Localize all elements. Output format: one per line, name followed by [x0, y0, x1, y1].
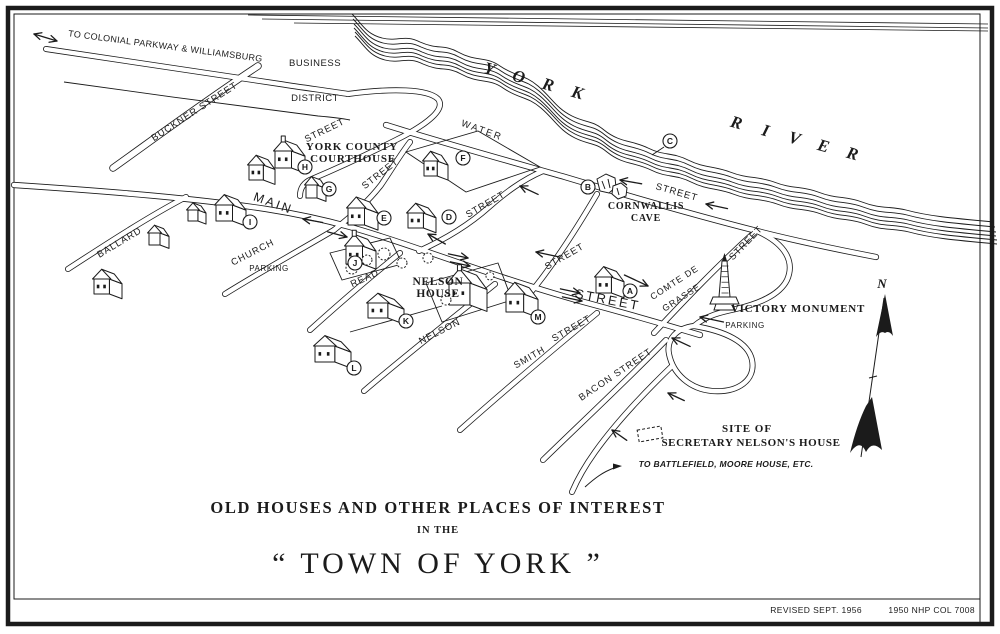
- arrow-head: [460, 258, 468, 260]
- building-window: [358, 214, 361, 218]
- building-window: [372, 309, 375, 313]
- markers-layer: ABCDEFGHIJKLM: [243, 134, 677, 375]
- building-window: [351, 214, 354, 218]
- building-window: [97, 285, 100, 289]
- label-secretary-nelson: SECRETARY NELSON'S HOUSE: [661, 437, 840, 449]
- labels-layer: TO COLONIAL PARKWAY & WILLIAMSBURGBUSINE…: [68, 28, 866, 469]
- poi-marker-j: J: [348, 256, 362, 270]
- label-street-smith: STREET: [550, 313, 593, 344]
- building-window: [509, 301, 512, 305]
- marker-letter-c: C: [667, 136, 673, 146]
- arrow-head: [706, 202, 714, 204]
- arrow-head: [620, 178, 628, 180]
- marker-letter-m: M: [534, 312, 541, 322]
- road-arrow-exit-sw: [612, 430, 627, 440]
- poi-marker-k: K: [399, 314, 413, 328]
- arrow-head: [536, 250, 544, 252]
- building-chimney: [457, 265, 461, 271]
- label-nelson-house-2: HOUSE: [416, 288, 459, 300]
- building-window: [319, 352, 322, 356]
- building-front: [306, 185, 317, 198]
- frame-layer: [8, 8, 992, 624]
- building-window: [599, 283, 602, 287]
- label-cave: CAVE: [631, 213, 661, 224]
- map-title-line2: IN THE: [417, 525, 459, 536]
- label-district: DISTRICT: [291, 93, 339, 104]
- building-window: [327, 352, 330, 356]
- river-label-letter: K: [568, 82, 587, 104]
- building-window: [417, 219, 420, 223]
- tree-scribble: [397, 258, 407, 268]
- title-layer: OLD HOUSES AND OTHER PLACES OF INTERESTI…: [210, 498, 975, 615]
- road-fill-parkway: [46, 49, 348, 94]
- river-label-letter: R: [727, 112, 744, 134]
- river-label-letter: R: [539, 74, 556, 96]
- compass-head: [876, 294, 893, 337]
- poi-marker-g: G: [322, 182, 336, 196]
- credit-catalog-number: 1950 NHP COL 7008: [888, 605, 975, 615]
- marker-letter-h: H: [302, 162, 308, 172]
- label-parking-church: PARKING: [249, 264, 289, 273]
- tree-scribble: [362, 255, 372, 265]
- far-shore-line: [248, 15, 988, 24]
- arrow-head: [34, 33, 42, 34]
- river-label-letter: R: [843, 143, 860, 165]
- map-svg: N TO COLONIAL PARKWAY & WILLIAMSBURGBUSI…: [0, 0, 1000, 634]
- label-nelson-house-1: NELSON: [413, 276, 464, 288]
- road-arrow-parkway-two-way: [34, 33, 57, 43]
- road-arrow-water-east-left: [706, 202, 728, 209]
- building-l-house: [314, 336, 352, 369]
- town-of-york-map-page: N TO COLONIAL PARKWAY & WILLIAMSBURGBUSI…: [0, 0, 1000, 634]
- tree-scribble: [423, 253, 433, 263]
- river-label-letter: V: [786, 128, 804, 150]
- label-nelson-street: NELSON: [417, 317, 462, 347]
- building-f-house: [423, 151, 449, 180]
- road-fill-turn-loop: [669, 326, 753, 391]
- poi-marker-i: I: [243, 215, 257, 229]
- label-courthouse: COURTHOUSE: [310, 153, 396, 165]
- river-label-letter: O: [510, 66, 527, 88]
- label-parking-victory: PARKING: [725, 321, 765, 330]
- poi-marker-b: B: [581, 180, 595, 194]
- building-house-west-1: [93, 269, 123, 299]
- building-house-west-2: [148, 225, 170, 248]
- battlefield-arrow-head: [613, 464, 622, 470]
- label-street-connector: STREET: [464, 189, 507, 220]
- poi-marker-m: M: [531, 310, 545, 324]
- road-arrow-loop-top: [672, 338, 690, 347]
- compass-n-label: N: [876, 276, 887, 291]
- building-i-house: [215, 195, 247, 227]
- building-front: [348, 208, 365, 225]
- map-title-line3: “ TOWN OF YORK ”: [272, 547, 604, 580]
- building-front: [94, 279, 109, 294]
- building-window: [219, 211, 222, 215]
- building-front: [249, 165, 263, 180]
- road-fill-water-street: [386, 125, 876, 257]
- building-window: [380, 309, 383, 313]
- tree-scribble: [486, 272, 494, 280]
- building-e-house: [347, 197, 379, 230]
- marker-letter-g: G: [326, 184, 333, 194]
- tree-scribble: [378, 248, 390, 260]
- building-house-west-3: [187, 203, 207, 224]
- building-window: [258, 171, 261, 175]
- label-water-street: WATER: [460, 118, 504, 143]
- building-front: [149, 233, 160, 245]
- marker-letter-e: E: [381, 213, 387, 223]
- river-label-letter: E: [814, 135, 831, 157]
- label-cornwallis: CORNWALLIS: [608, 201, 684, 212]
- label-buckner-street: BUCKNER STREET: [149, 80, 239, 144]
- building-window: [226, 211, 229, 215]
- marker-letter-a: A: [627, 286, 633, 296]
- secretary-nelson-site-outline: [637, 426, 663, 442]
- arrow-head: [339, 237, 347, 239]
- label-ballard-street: BALLARD: [95, 225, 144, 260]
- poi-marker-l: L: [347, 361, 361, 375]
- poi-marker-c: C: [663, 134, 677, 148]
- building-k-house: [367, 293, 405, 324]
- building-window: [103, 285, 106, 289]
- building-courthouse-wing: [248, 155, 276, 184]
- building-front: [315, 346, 335, 362]
- label-site-of: SITE OF: [722, 423, 772, 435]
- building-window: [605, 283, 608, 287]
- marker-letter-b: B: [585, 182, 591, 192]
- building-window: [252, 171, 255, 175]
- label-business: BUSINESS: [289, 58, 341, 69]
- poi-marker-d: D: [442, 210, 456, 224]
- building-front: [408, 213, 423, 228]
- road-arrow-loop-bottom: [668, 393, 684, 401]
- outer-border: [8, 8, 992, 624]
- compass-fletch: [850, 397, 882, 453]
- building-front: [275, 151, 292, 168]
- building-window: [432, 167, 435, 171]
- poi-marker-e: E: [377, 211, 391, 225]
- marker-letter-j: J: [353, 258, 358, 268]
- river-label-letter: I: [759, 120, 773, 141]
- road-arrow-water-b-left: [620, 178, 642, 185]
- label-to-battlefield: TO BATTLEFIELD, MOORE HOUSE, ETC.: [639, 459, 814, 469]
- marker-letter-i: I: [249, 217, 251, 227]
- building-window: [517, 301, 520, 305]
- arrow-head: [49, 41, 57, 42]
- credit-revised-date: REVISED SEPT. 1956: [770, 605, 862, 615]
- map-title-line1: OLD HOUSES AND OTHER PLACES OF INTEREST: [210, 498, 665, 517]
- road-arrow-connector-up: [520, 186, 538, 195]
- marker-letter-l: L: [351, 363, 356, 373]
- poi-marker-f: F: [456, 151, 470, 165]
- poi-marker-a: A: [623, 284, 637, 298]
- label-york-county: YORK COUNTY: [306, 141, 398, 153]
- building-front: [216, 205, 233, 221]
- building-d-house: [407, 203, 437, 233]
- building-front: [368, 303, 388, 318]
- poi-marker-h: H: [298, 160, 312, 174]
- building-front: [506, 294, 524, 312]
- marker-letter-k: K: [403, 316, 410, 326]
- marker-letter-f: F: [460, 153, 465, 163]
- road-casing-turn-loop: [669, 326, 753, 391]
- building-window: [349, 253, 352, 257]
- building-chimney: [281, 136, 285, 142]
- cornwallis-cave-drawing: [612, 183, 627, 199]
- arrow-head: [428, 234, 436, 235]
- building-window: [278, 157, 281, 161]
- building-chimney: [352, 230, 356, 236]
- building-window: [462, 291, 465, 295]
- building-front: [424, 161, 437, 176]
- battlefield-arrow-tail: [585, 468, 614, 487]
- marker-c-leader: [652, 147, 664, 155]
- marker-letter-d: D: [446, 212, 452, 222]
- building-window: [426, 167, 429, 171]
- building-window: [285, 157, 288, 161]
- building-window: [411, 219, 414, 223]
- label-victory-monument: VICTORY MONUMENT: [731, 303, 865, 315]
- building-front: [188, 210, 198, 221]
